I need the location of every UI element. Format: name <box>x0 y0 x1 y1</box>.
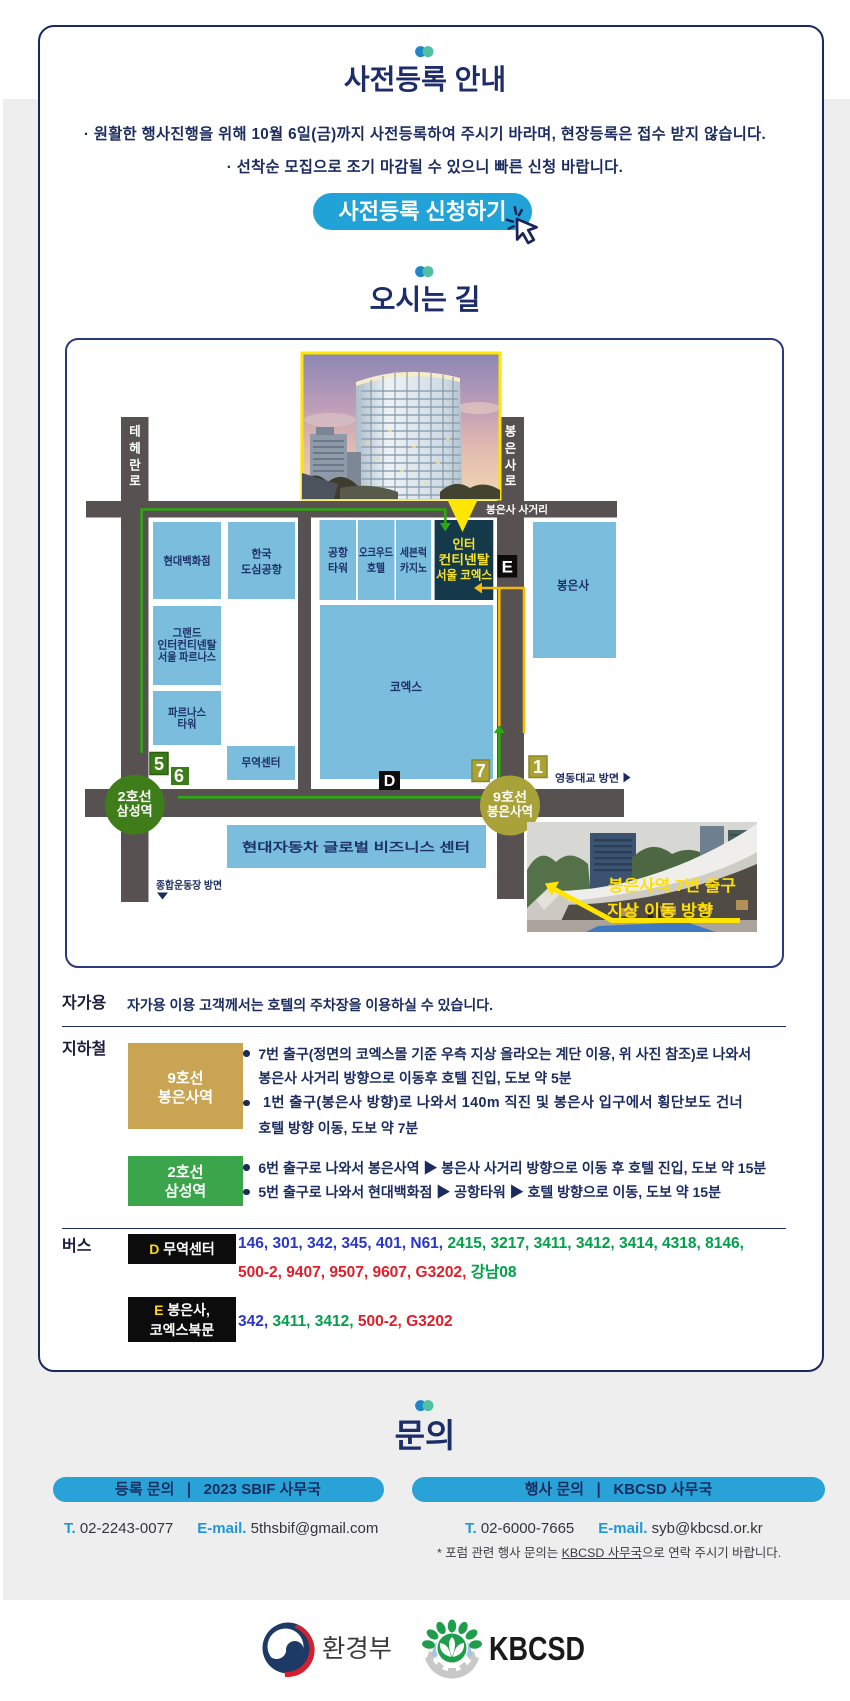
svg-text:KBCSD: KBCSD <box>489 1630 585 1667</box>
svg-text:환경부: 환경부 <box>322 1635 392 1663</box>
